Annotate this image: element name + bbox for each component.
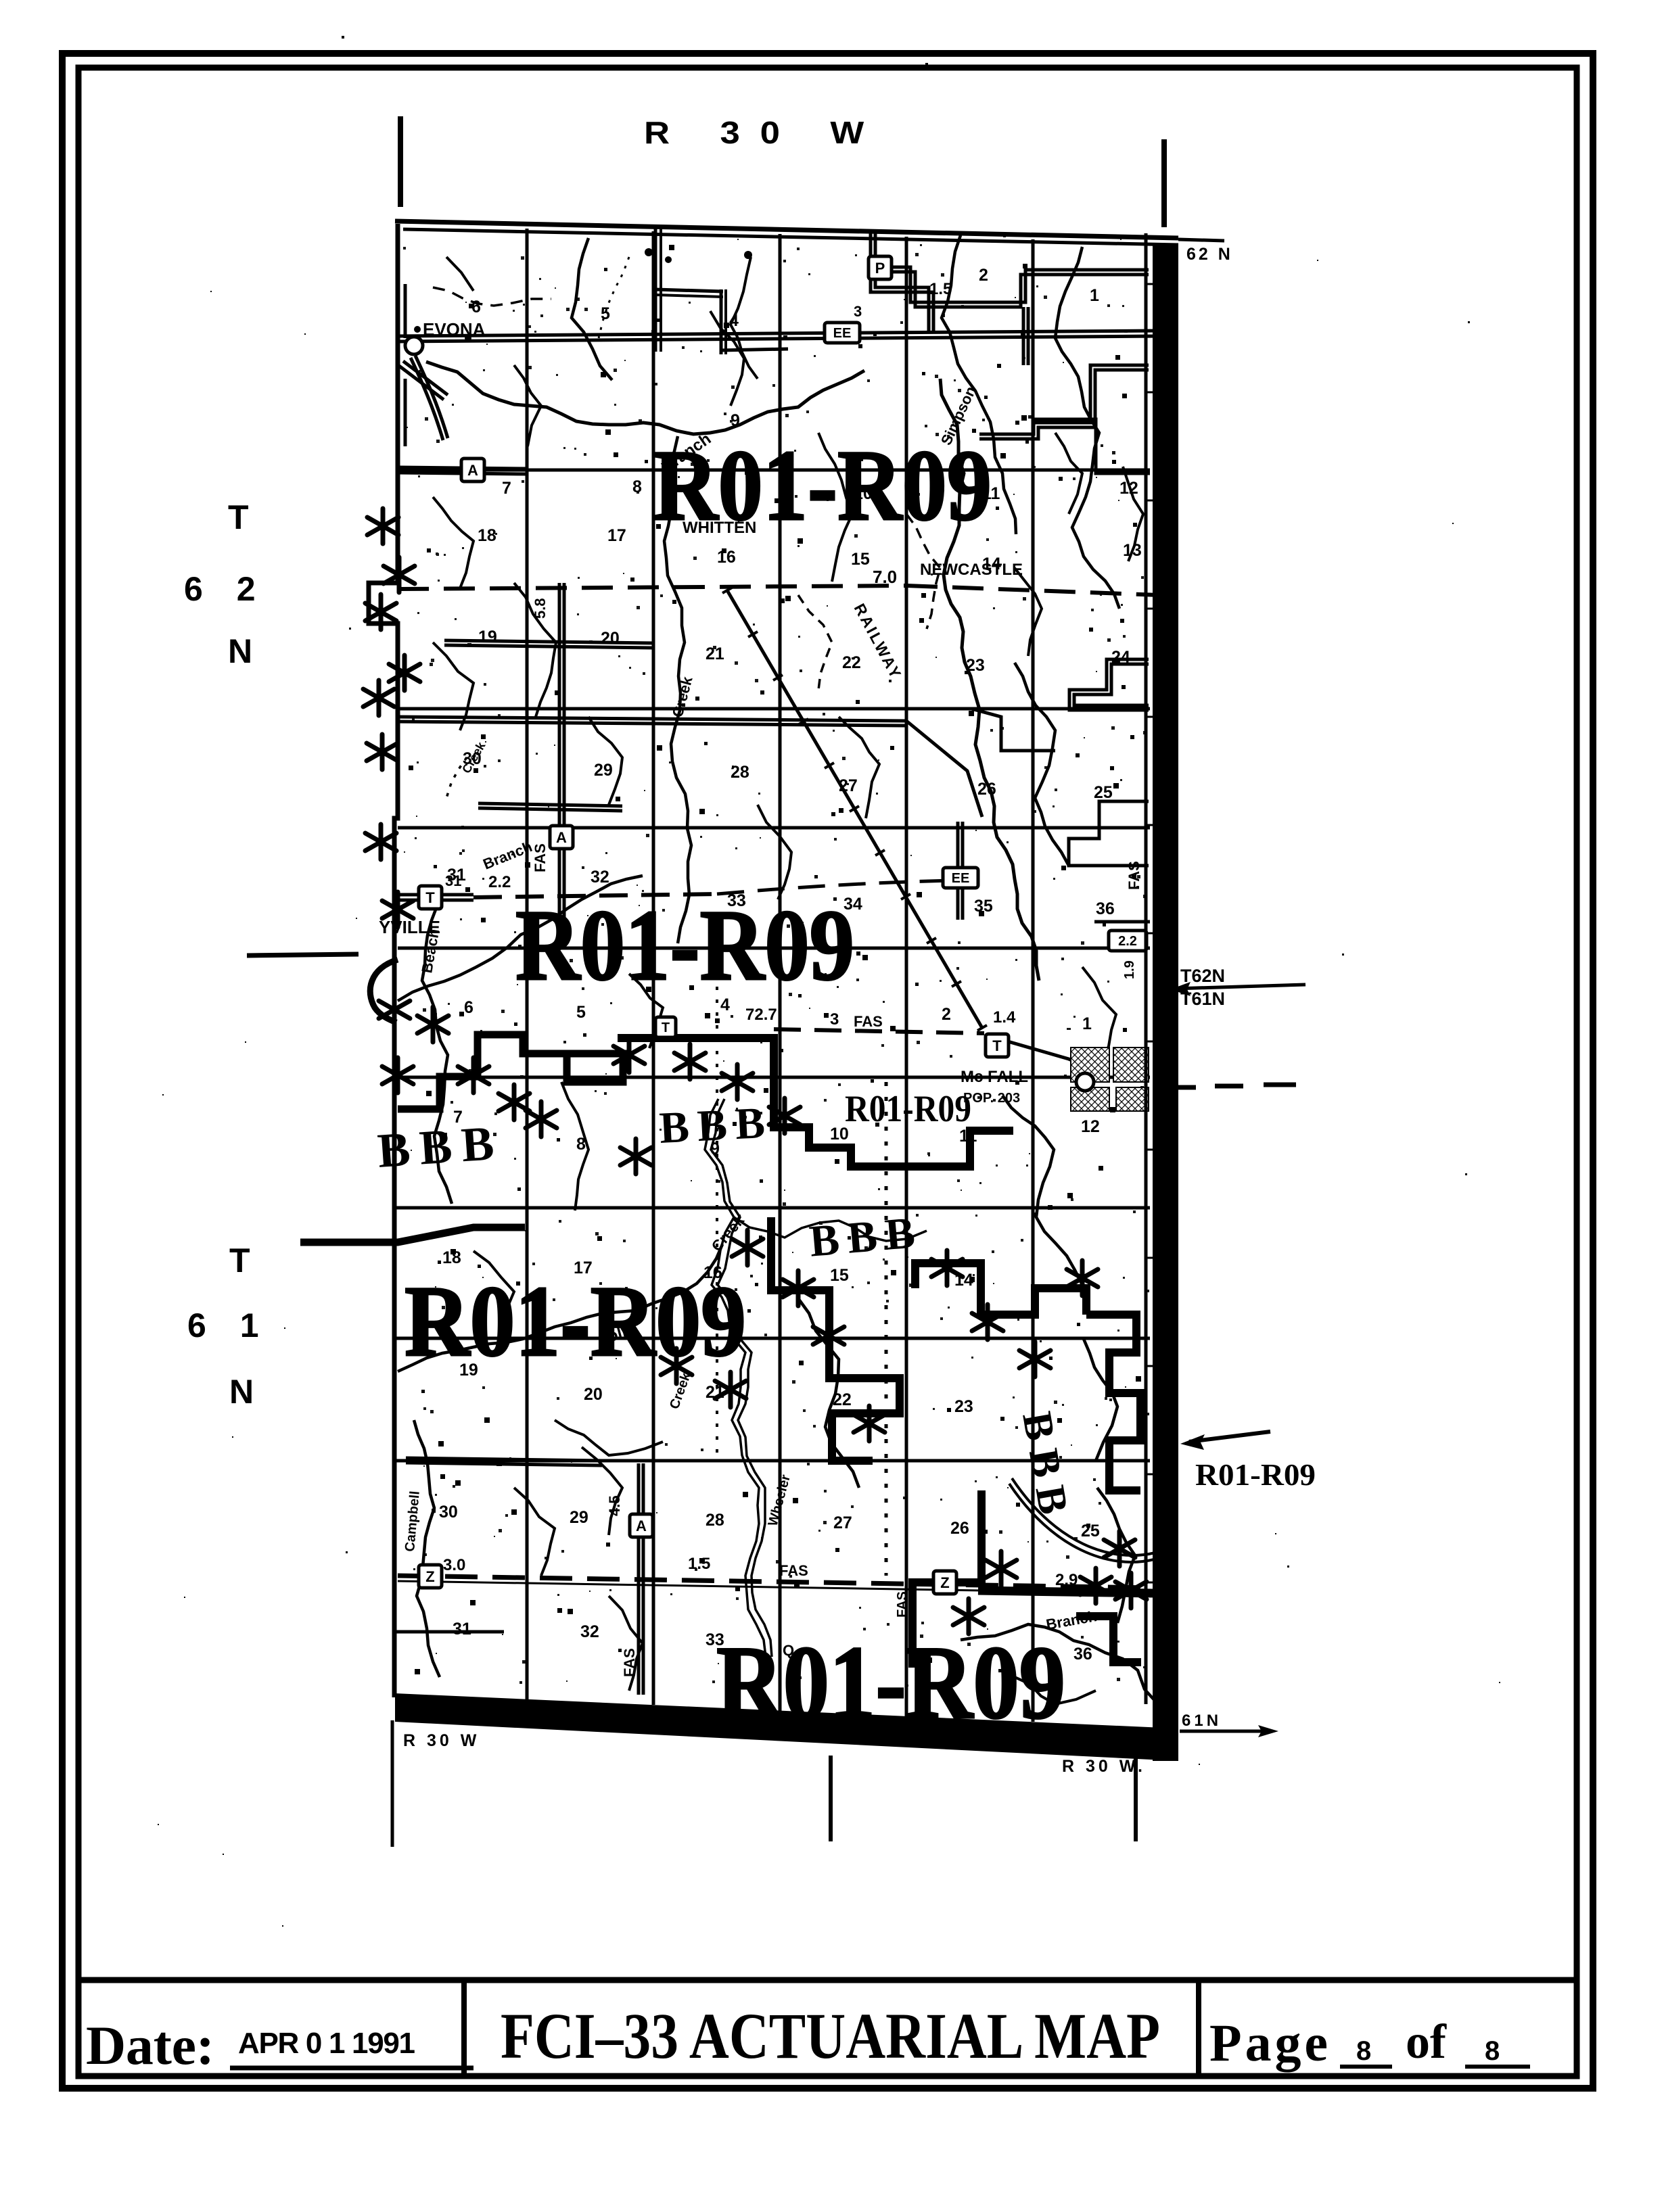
- svg-text:of: of: [1406, 2015, 1447, 2069]
- svg-text:36: 36: [1073, 1645, 1092, 1664]
- svg-text:6: 6: [471, 298, 481, 316]
- svg-text:24: 24: [1111, 648, 1130, 667]
- svg-text:EE: EE: [833, 326, 852, 341]
- svg-text:EVONA: EVONA: [423, 319, 486, 339]
- svg-text:14: 14: [954, 1271, 973, 1290]
- svg-text:R 30 W: R 30 W: [644, 115, 884, 150]
- svg-text:20: 20: [584, 1385, 603, 1404]
- svg-text:Page: Page: [1209, 2013, 1328, 2072]
- svg-text:R01-R09: R01-R09: [405, 1265, 746, 1378]
- svg-text:23: 23: [966, 656, 985, 675]
- svg-text:21: 21: [706, 1383, 724, 1402]
- svg-text:4: 4: [729, 311, 739, 330]
- svg-text:18: 18: [478, 526, 496, 545]
- svg-text:Z: Z: [425, 1568, 434, 1585]
- svg-text:N: N: [229, 1373, 254, 1411]
- svg-text:POP. 203: POP. 203: [963, 1091, 1020, 1106]
- svg-text:61N: 61N: [1182, 1712, 1222, 1730]
- svg-text:FAS: FAS: [532, 843, 549, 872]
- svg-text:32: 32: [591, 868, 609, 887]
- svg-text:28: 28: [706, 1511, 724, 1530]
- svg-text:61: 61: [187, 1307, 293, 1344]
- svg-text:62 N: 62 N: [1186, 245, 1233, 264]
- svg-text:FCI–33 ACTUARIAL MAP: FCI–33 ACTUARIAL MAP: [501, 2000, 1160, 2072]
- svg-text:29: 29: [594, 761, 613, 780]
- svg-text:8: 8: [1356, 2036, 1371, 2066]
- svg-text:12: 12: [1119, 479, 1138, 498]
- svg-text:18: 18: [442, 1248, 461, 1267]
- svg-text:6: 6: [464, 998, 473, 1017]
- svg-text:13: 13: [1123, 541, 1142, 560]
- svg-text:R01-R09: R01-R09: [845, 1088, 971, 1130]
- svg-text:23: 23: [954, 1397, 973, 1416]
- svg-text:R01-R09: R01-R09: [653, 429, 992, 542]
- svg-text:1.9: 1.9: [1122, 960, 1137, 979]
- svg-text:15: 15: [851, 550, 870, 569]
- svg-text:R 30 W.: R 30 W.: [1062, 1757, 1146, 1776]
- svg-text:2.2: 2.2: [488, 873, 511, 891]
- svg-text:20: 20: [601, 629, 620, 648]
- svg-text:62: 62: [184, 570, 290, 608]
- svg-text:FAS: FAS: [895, 1591, 910, 1618]
- svg-text:7: 7: [453, 1108, 463, 1127]
- svg-text:14: 14: [982, 555, 1001, 573]
- svg-text:19: 19: [478, 628, 497, 646]
- svg-text:FAS: FAS: [621, 1648, 638, 1677]
- svg-text:P: P: [875, 260, 885, 277]
- svg-text:Mc FALL: Mc FALL: [961, 1068, 1028, 1086]
- svg-text:N: N: [228, 632, 252, 670]
- svg-text:1.5: 1.5: [929, 280, 952, 298]
- svg-text:7.0: 7.0: [873, 567, 897, 587]
- svg-text:Z: Z: [940, 1574, 949, 1591]
- svg-text:2.9: 2.9: [1055, 1571, 1078, 1589]
- svg-text:T: T: [228, 498, 249, 536]
- svg-text:8: 8: [1485, 2036, 1500, 2066]
- svg-text:36: 36: [1096, 899, 1115, 918]
- svg-text:3.0: 3.0: [443, 1556, 465, 1574]
- svg-text:1.5: 1.5: [688, 1555, 710, 1573]
- svg-text:21: 21: [706, 644, 724, 663]
- svg-text:A: A: [636, 1517, 647, 1534]
- svg-text:NEWCASTLE: NEWCASTLE: [920, 561, 1023, 579]
- svg-text:2: 2: [979, 266, 988, 285]
- svg-text:26: 26: [950, 1519, 969, 1538]
- svg-text:16: 16: [717, 548, 736, 567]
- svg-text:31: 31: [445, 872, 461, 889]
- svg-text:5.8: 5.8: [532, 598, 549, 619]
- svg-text:3: 3: [830, 1010, 839, 1029]
- svg-text:T: T: [662, 1020, 670, 1035]
- svg-text:30: 30: [439, 1503, 458, 1522]
- svg-text:T: T: [229, 1242, 250, 1279]
- svg-text:26: 26: [977, 780, 996, 799]
- svg-text:T62N: T62N: [1180, 966, 1225, 986]
- svg-text:T: T: [992, 1037, 1002, 1054]
- svg-text:35: 35: [974, 897, 993, 916]
- svg-text:5: 5: [576, 1003, 586, 1022]
- svg-text:9: 9: [710, 1139, 720, 1158]
- svg-text:1: 1: [1090, 286, 1099, 305]
- svg-text:FAS: FAS: [1126, 861, 1142, 890]
- svg-text:5: 5: [601, 304, 610, 323]
- svg-text:FAS: FAS: [854, 1013, 883, 1030]
- svg-text:R01-R09: R01-R09: [1195, 1457, 1316, 1492]
- svg-text:BBB: BBB: [376, 1115, 505, 1178]
- svg-text:22: 22: [842, 653, 861, 672]
- svg-text:28: 28: [731, 763, 749, 782]
- svg-text:R 30 W: R 30 W: [403, 1731, 480, 1750]
- svg-text:2.2: 2.2: [1118, 934, 1137, 949]
- svg-text:25: 25: [1081, 1522, 1100, 1540]
- svg-text:31: 31: [453, 1620, 471, 1639]
- svg-text:4.5: 4.5: [606, 1495, 623, 1516]
- svg-text:7: 7: [502, 479, 511, 498]
- svg-text:3: 3: [854, 303, 862, 320]
- svg-text:8: 8: [632, 477, 642, 496]
- svg-text:R01-R09: R01-R09: [515, 889, 854, 1002]
- svg-text:2: 2: [942, 1005, 951, 1024]
- svg-text:32: 32: [580, 1622, 599, 1641]
- svg-text:25: 25: [1094, 783, 1113, 802]
- svg-text:15: 15: [830, 1266, 849, 1285]
- svg-text:27: 27: [833, 1513, 852, 1532]
- svg-text:1.4: 1.4: [993, 1008, 1016, 1027]
- svg-text:27: 27: [839, 776, 858, 795]
- svg-text:T: T: [425, 889, 435, 906]
- svg-text:12: 12: [1081, 1117, 1100, 1136]
- svg-text:Date:: Date:: [86, 2015, 214, 2076]
- svg-text:A: A: [556, 829, 567, 846]
- svg-text:FAS: FAS: [779, 1562, 808, 1579]
- svg-text:APR 0 1 1991: APR 0 1 1991: [238, 2027, 415, 2060]
- svg-text:A: A: [467, 462, 478, 479]
- svg-text:8: 8: [576, 1135, 586, 1154]
- svg-text:29: 29: [570, 1508, 588, 1527]
- svg-text:EE: EE: [952, 871, 970, 886]
- svg-text:1: 1: [1082, 1014, 1092, 1033]
- svg-text:9: 9: [731, 411, 740, 430]
- svg-text:17: 17: [607, 526, 626, 545]
- svg-text:22: 22: [833, 1390, 852, 1409]
- svg-text:72.7: 72.7: [745, 1006, 777, 1024]
